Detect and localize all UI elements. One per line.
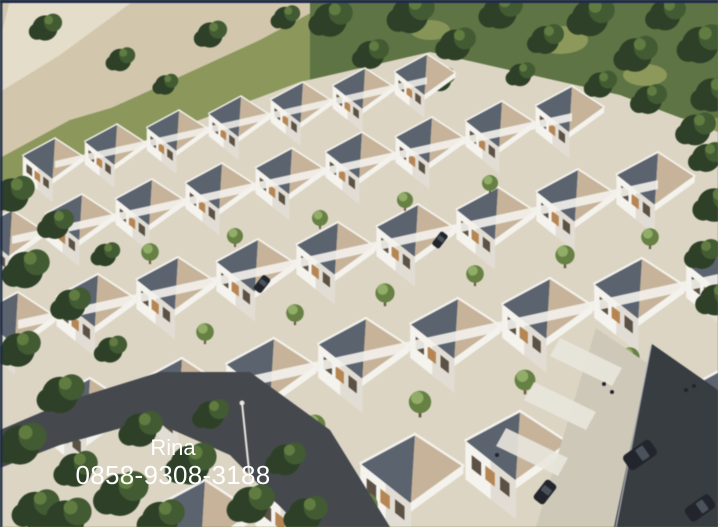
contact-name: Rina	[62, 435, 284, 461]
contact-phone: 0858-9308-3188	[62, 461, 284, 490]
top-frame-strip	[0, 0, 718, 3]
street-lamp-head	[240, 401, 245, 406]
contact-overlay: Rina 0858-9308-3188	[62, 435, 284, 490]
screenshot-root: Rina 0858-9308-3188	[0, 0, 718, 527]
left-frame-strip	[0, 0, 3, 527]
